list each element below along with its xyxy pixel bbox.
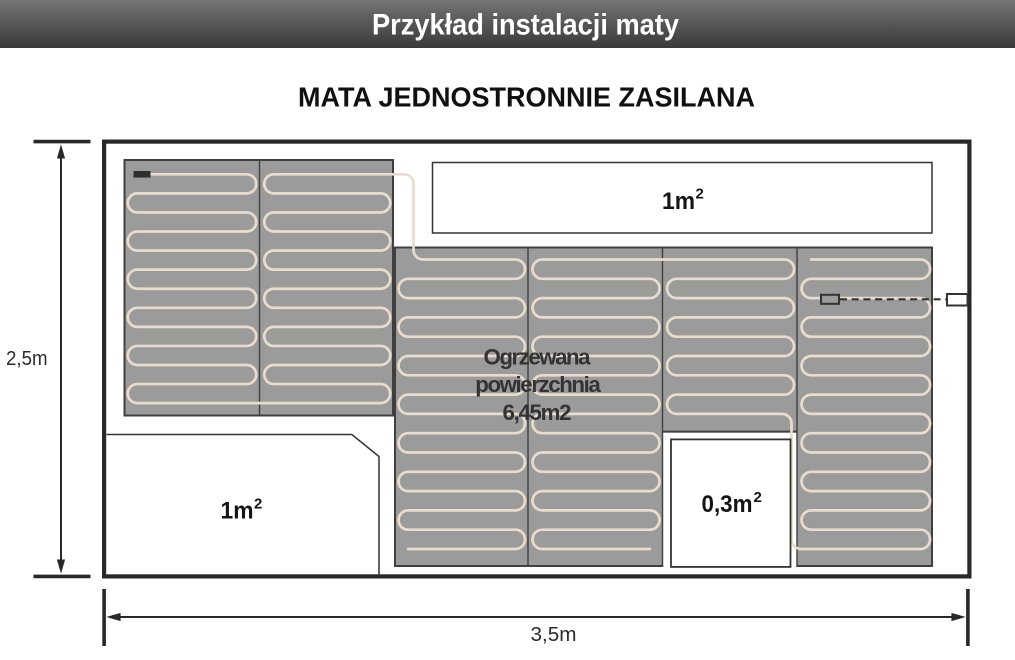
svg-text:MATA JEDNOSTRONNIE ZASILANA: MATA JEDNOSTRONNIE ZASILANA — [298, 82, 755, 113]
svg-text:Przykład instalacji maty: Przykład instalacji maty — [372, 9, 679, 42]
svg-text:1m: 1m — [662, 188, 695, 215]
svg-text:1m: 1m — [221, 498, 254, 525]
svg-text:2,5m: 2,5m — [6, 348, 48, 370]
svg-text:2: 2 — [754, 489, 762, 506]
svg-text:2: 2 — [254, 496, 262, 513]
svg-text:Ogrzewana: Ogrzewana — [484, 345, 592, 370]
svg-text:3,5m: 3,5m — [531, 624, 577, 646]
svg-text:0,3m: 0,3m — [702, 491, 753, 518]
svg-text:2: 2 — [696, 186, 704, 203]
svg-text:6,45m2: 6,45m2 — [503, 400, 572, 425]
svg-text:powierzchnia: powierzchnia — [475, 372, 601, 397]
